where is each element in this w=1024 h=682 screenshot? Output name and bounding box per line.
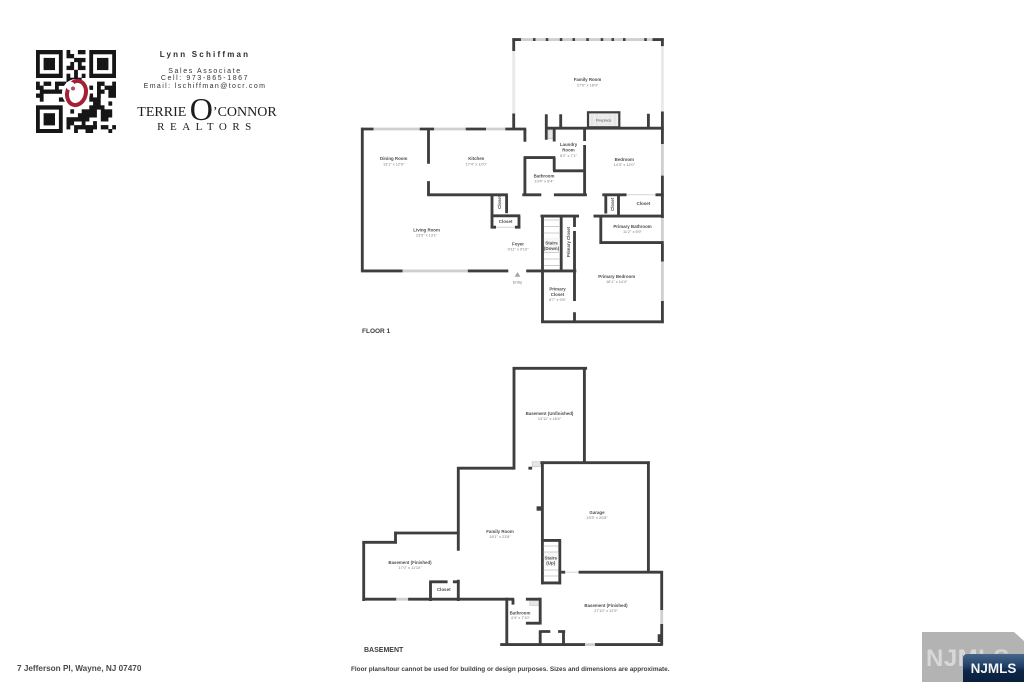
- svg-text:17'4" x 12'0": 17'4" x 12'0": [466, 162, 488, 167]
- svg-text:23'9" x 13'1": 23'9" x 13'1": [416, 233, 438, 238]
- svg-text:Kitchen: Kitchen: [468, 156, 484, 161]
- svg-text:19'3" x 20'8": 19'3" x 20'8": [586, 515, 608, 520]
- svg-text:Primary Closet: Primary Closet: [566, 226, 571, 257]
- svg-text:Dining Room: Dining Room: [380, 156, 407, 161]
- svg-text:Closet: Closet: [499, 219, 513, 224]
- svg-text:17'0" x 11'10": 17'0" x 11'10": [398, 565, 422, 570]
- svg-text:Closet: Closet: [497, 195, 502, 209]
- svg-text:10'4" x 6'4": 10'4" x 6'4": [534, 179, 554, 184]
- svg-text:Laundry: Laundry: [560, 142, 578, 147]
- svg-text:Fireplace: Fireplace: [596, 119, 612, 123]
- svg-text:16'1" x 14'4": 16'1" x 14'4": [606, 279, 628, 284]
- svg-text:Primary: Primary: [549, 286, 566, 291]
- svg-text:Closet: Closet: [610, 197, 615, 211]
- svg-text:5'7" x 9'6": 5'7" x 9'6": [549, 297, 567, 302]
- svg-text:4'4" x 7'10": 4'4" x 7'10": [511, 615, 531, 620]
- svg-text:11'2" x 6'9": 11'2" x 6'9": [623, 229, 643, 234]
- svg-text:Closet: Closet: [637, 201, 651, 206]
- svg-text:Living Room: Living Room: [413, 227, 440, 232]
- svg-text:Entry: Entry: [513, 280, 522, 285]
- svg-text:13'11" x 18'4": 13'11" x 18'4": [538, 416, 562, 421]
- svg-text:13'1" x 12'9": 13'1" x 12'9": [383, 162, 405, 167]
- svg-text:Family Room: Family Room: [574, 77, 602, 82]
- svg-text:9'11" x 9'10": 9'11" x 9'10": [507, 247, 529, 252]
- svg-text:18'1" x 23'8": 18'1" x 23'8": [489, 534, 511, 539]
- svg-text:Room: Room: [562, 148, 575, 153]
- svg-text:14'3" x 12'0": 14'3" x 12'0": [614, 162, 636, 167]
- svg-text:Stairs: Stairs: [545, 241, 558, 246]
- svg-text:(Down): (Down): [544, 246, 560, 251]
- svg-text:(Up): (Up): [546, 561, 555, 566]
- svg-text:27'0" x 16'0": 27'0" x 16'0": [577, 83, 599, 88]
- svg-text:Closet: Closet: [437, 587, 451, 592]
- svg-text:8'2" x 7'1": 8'2" x 7'1": [560, 153, 578, 158]
- svg-text:27'10" x 12'9": 27'10" x 12'9": [594, 608, 618, 613]
